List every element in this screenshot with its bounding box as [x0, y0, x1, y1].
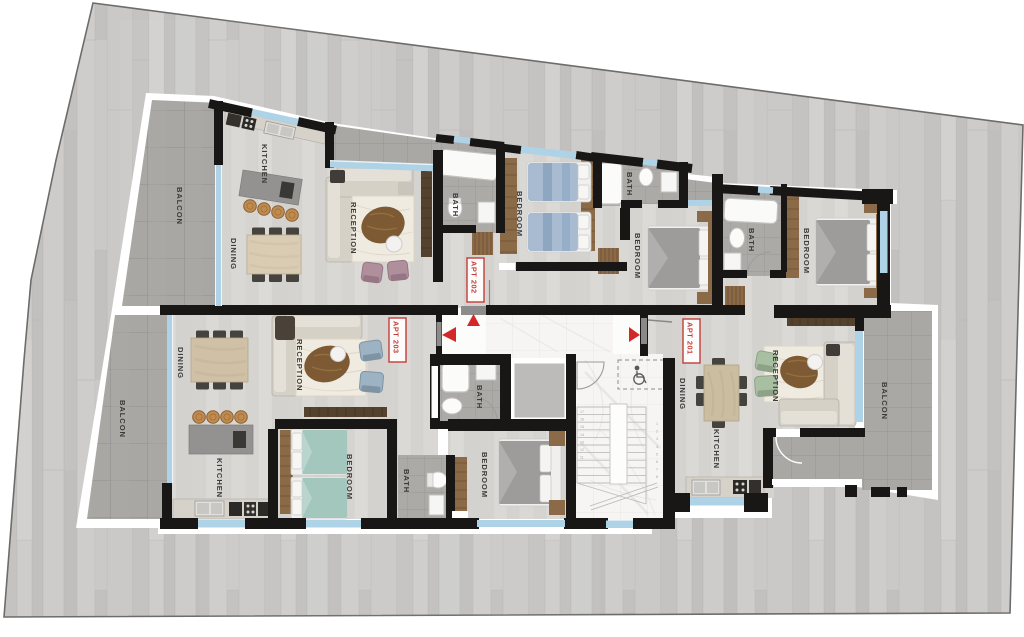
svg-text:BALCON: BALCON: [175, 187, 184, 225]
svg-text:BATH: BATH: [475, 385, 484, 409]
svg-text:8: 8: [656, 475, 658, 479]
svg-text:APT 201: APT 201: [686, 322, 695, 355]
svg-text:DINING: DINING: [229, 238, 238, 270]
svg-text:DINING: DINING: [176, 347, 185, 379]
svg-text:BALCON: BALCON: [880, 382, 889, 420]
svg-text:RECEPTION: RECEPTION: [295, 339, 304, 391]
svg-text:RECEPTION: RECEPTION: [349, 202, 358, 254]
svg-text:BEDROOM: BEDROOM: [802, 228, 811, 274]
svg-text:11: 11: [580, 456, 584, 460]
svg-text:5: 5: [656, 452, 658, 456]
svg-text:13: 13: [580, 440, 584, 444]
svg-text:KITCHEN: KITCHEN: [215, 458, 224, 498]
svg-text:16: 16: [580, 418, 584, 422]
svg-text:KITCHEN: KITCHEN: [712, 429, 721, 469]
svg-text:14: 14: [580, 433, 584, 437]
svg-text:15: 15: [580, 425, 584, 429]
svg-text:APT 203: APT 203: [392, 321, 401, 354]
svg-text:RECEPTION: RECEPTION: [771, 350, 780, 402]
svg-text:BEDROOM: BEDROOM: [515, 191, 524, 237]
svg-text:BALCON: BALCON: [118, 400, 127, 438]
svg-text:KITCHEN: KITCHEN: [260, 144, 269, 184]
svg-text:BATH: BATH: [747, 228, 756, 252]
svg-text:BEDROOM: BEDROOM: [480, 452, 489, 498]
svg-text:BATH: BATH: [402, 469, 411, 493]
svg-text:3: 3: [656, 437, 658, 441]
svg-text:6: 6: [656, 460, 658, 464]
svg-text:BEDROOM: BEDROOM: [345, 454, 354, 500]
svg-text:4: 4: [656, 445, 658, 449]
svg-text:DINING: DINING: [678, 378, 687, 410]
svg-text:7: 7: [656, 468, 658, 472]
svg-text:BATH: BATH: [451, 193, 460, 217]
svg-text:17: 17: [580, 410, 584, 414]
svg-text:2: 2: [656, 430, 658, 434]
svg-text:BEDROOM: BEDROOM: [633, 233, 642, 279]
svg-text:APT 202: APT 202: [470, 261, 479, 294]
svg-text:BATH: BATH: [625, 172, 634, 196]
svg-text:12: 12: [580, 448, 584, 452]
svg-text:1: 1: [656, 422, 658, 426]
